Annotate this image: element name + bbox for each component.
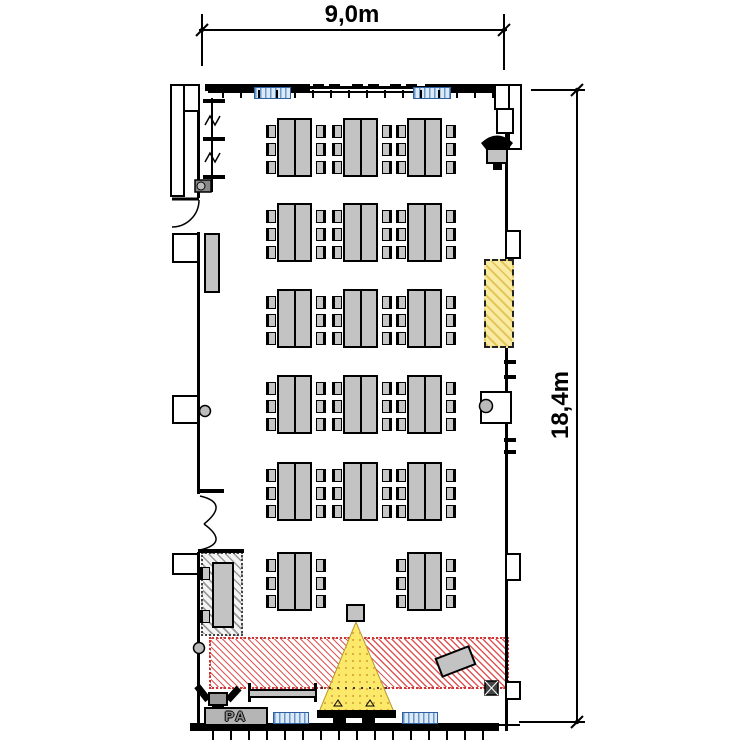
chair xyxy=(332,505,342,518)
table-group xyxy=(343,203,378,262)
table-divider xyxy=(294,119,296,176)
table-divider xyxy=(424,204,426,261)
chair xyxy=(332,246,342,259)
window-tick xyxy=(492,90,494,98)
chair xyxy=(396,559,406,572)
table-group xyxy=(277,203,312,262)
chair xyxy=(382,400,392,413)
pa-speaker-box: PA xyxy=(204,707,268,726)
window-tick xyxy=(464,731,466,740)
table-divider xyxy=(424,553,426,610)
chair xyxy=(446,125,456,138)
chair xyxy=(316,382,326,395)
window-tick xyxy=(456,90,458,98)
chair xyxy=(316,246,326,259)
chair xyxy=(332,210,342,223)
chair xyxy=(446,400,456,413)
window-tick xyxy=(294,90,296,98)
chair xyxy=(266,210,276,223)
chair xyxy=(316,559,326,572)
chair xyxy=(316,228,326,241)
chair xyxy=(316,125,326,138)
chair xyxy=(396,246,406,259)
table-group xyxy=(343,289,378,348)
table-group xyxy=(407,118,442,177)
window-tick xyxy=(284,731,286,740)
pa-label: PA xyxy=(225,708,247,724)
chair xyxy=(382,418,392,431)
chair xyxy=(316,332,326,345)
chair xyxy=(446,210,456,223)
chair xyxy=(396,314,406,327)
window-tick xyxy=(374,731,376,740)
chair xyxy=(266,143,276,156)
table-group xyxy=(407,375,442,434)
table-group xyxy=(343,375,378,434)
floor-plan: PA 9,0m 18,4m xyxy=(0,0,748,748)
furniture-layer xyxy=(0,0,748,748)
chair xyxy=(332,125,342,138)
chair xyxy=(266,382,276,395)
chair xyxy=(316,418,326,431)
chair xyxy=(382,314,392,327)
chair xyxy=(446,161,456,174)
window-tick xyxy=(240,90,242,98)
chair xyxy=(446,505,456,518)
chair xyxy=(316,595,326,608)
window-tick xyxy=(410,731,412,740)
chair xyxy=(316,469,326,482)
chair xyxy=(266,296,276,309)
window-tick xyxy=(356,731,358,740)
chair xyxy=(446,314,456,327)
chair xyxy=(446,595,456,608)
projector xyxy=(346,604,365,622)
chair xyxy=(332,228,342,241)
chair xyxy=(396,143,406,156)
chair xyxy=(382,161,392,174)
chair xyxy=(446,143,456,156)
window-tick xyxy=(474,90,476,98)
window-tick xyxy=(338,731,340,740)
table-group xyxy=(407,203,442,262)
table-divider xyxy=(360,290,362,347)
chair xyxy=(266,228,276,241)
chair xyxy=(382,505,392,518)
bench-bar xyxy=(248,689,317,698)
table-divider xyxy=(360,463,362,520)
table-divider xyxy=(294,204,296,261)
chair xyxy=(396,469,406,482)
table-group xyxy=(343,462,378,521)
window-tick xyxy=(482,731,484,740)
window-tick xyxy=(312,90,314,98)
dim-ext-top-left xyxy=(201,14,203,66)
table-divider xyxy=(294,553,296,610)
window-tick xyxy=(438,90,440,98)
window-tick xyxy=(258,90,260,98)
chair xyxy=(382,143,392,156)
window-tick xyxy=(302,731,304,740)
window-tick xyxy=(392,731,394,740)
chair xyxy=(446,296,456,309)
chair xyxy=(332,161,342,174)
table-divider xyxy=(294,463,296,520)
chair xyxy=(396,332,406,345)
chair xyxy=(382,487,392,500)
window-tick xyxy=(276,90,278,98)
chair xyxy=(332,469,342,482)
screen-foot xyxy=(333,718,346,723)
chair xyxy=(446,469,456,482)
chair xyxy=(446,228,456,241)
table-divider xyxy=(360,376,362,433)
chair xyxy=(332,400,342,413)
window-tick xyxy=(420,90,422,98)
dim-label-height: 18,4m xyxy=(548,355,574,455)
window-tick xyxy=(266,731,268,740)
chair xyxy=(396,505,406,518)
chair xyxy=(382,246,392,259)
chair xyxy=(382,125,392,138)
chair xyxy=(316,296,326,309)
chair xyxy=(446,418,456,431)
chair xyxy=(266,595,276,608)
chair xyxy=(266,161,276,174)
chair xyxy=(266,469,276,482)
chair xyxy=(332,314,342,327)
dim-line-top xyxy=(199,29,507,31)
chair xyxy=(382,296,392,309)
chair xyxy=(332,487,342,500)
chair xyxy=(316,210,326,223)
table-group xyxy=(407,289,442,348)
table-divider xyxy=(424,463,426,520)
screen-foot xyxy=(362,718,375,723)
chair xyxy=(266,314,276,327)
table-group xyxy=(277,375,312,434)
window-tick xyxy=(248,731,250,740)
chair xyxy=(332,418,342,431)
chair xyxy=(266,487,276,500)
chair xyxy=(396,418,406,431)
chair xyxy=(316,505,326,518)
chair xyxy=(332,296,342,309)
chair xyxy=(200,567,210,580)
table-divider xyxy=(294,290,296,347)
chair xyxy=(396,210,406,223)
chair xyxy=(266,400,276,413)
chair xyxy=(332,143,342,156)
table-divider xyxy=(360,119,362,176)
chair xyxy=(266,125,276,138)
chair xyxy=(396,228,406,241)
dim-ext-right-bottom xyxy=(519,721,585,723)
table-group xyxy=(277,552,312,611)
window-tick xyxy=(446,731,448,740)
chair xyxy=(446,246,456,259)
chair xyxy=(446,332,456,345)
chair xyxy=(382,210,392,223)
table-divider xyxy=(294,376,296,433)
chair xyxy=(396,400,406,413)
chair xyxy=(446,382,456,395)
chair xyxy=(266,332,276,345)
table-group xyxy=(407,552,442,611)
chair xyxy=(446,487,456,500)
dim-line-right xyxy=(576,88,578,724)
dim-ext-top-right xyxy=(503,14,505,70)
chair xyxy=(382,469,392,482)
table-group xyxy=(407,462,442,521)
chair xyxy=(316,161,326,174)
window-tick xyxy=(348,90,350,98)
table-group xyxy=(343,118,378,177)
window-tick xyxy=(402,90,404,98)
chair xyxy=(266,577,276,590)
chair xyxy=(266,559,276,572)
chair xyxy=(396,487,406,500)
chair xyxy=(316,143,326,156)
chair xyxy=(266,246,276,259)
chair xyxy=(332,332,342,345)
chair xyxy=(316,400,326,413)
table-divider xyxy=(360,204,362,261)
head-table xyxy=(212,562,234,628)
window-tick xyxy=(212,731,214,740)
chair xyxy=(266,418,276,431)
projection-screen xyxy=(317,710,396,718)
window-tick xyxy=(330,90,332,98)
chair xyxy=(396,577,406,590)
chair xyxy=(446,559,456,572)
table-group xyxy=(277,289,312,348)
window-tick xyxy=(222,90,224,98)
chair xyxy=(316,487,326,500)
chair xyxy=(316,577,326,590)
window-tick xyxy=(428,731,430,740)
window-tick xyxy=(366,90,368,98)
window-tick xyxy=(320,731,322,740)
chair xyxy=(396,125,406,138)
chair xyxy=(396,595,406,608)
chair xyxy=(382,382,392,395)
table-group xyxy=(277,118,312,177)
table-group xyxy=(277,462,312,521)
chair xyxy=(316,314,326,327)
chair xyxy=(446,577,456,590)
chair xyxy=(396,382,406,395)
window-tick xyxy=(384,90,386,98)
chair xyxy=(382,332,392,345)
chair xyxy=(200,610,210,623)
table-divider xyxy=(424,290,426,347)
chair xyxy=(332,382,342,395)
chair xyxy=(266,505,276,518)
window-tick xyxy=(230,731,232,740)
table-divider xyxy=(424,376,426,433)
chair xyxy=(382,228,392,241)
dim-ext-right-top xyxy=(531,89,585,91)
dim-label-width: 9,0m xyxy=(300,2,404,28)
table-divider xyxy=(424,119,426,176)
chair xyxy=(396,161,406,174)
chair xyxy=(396,296,406,309)
